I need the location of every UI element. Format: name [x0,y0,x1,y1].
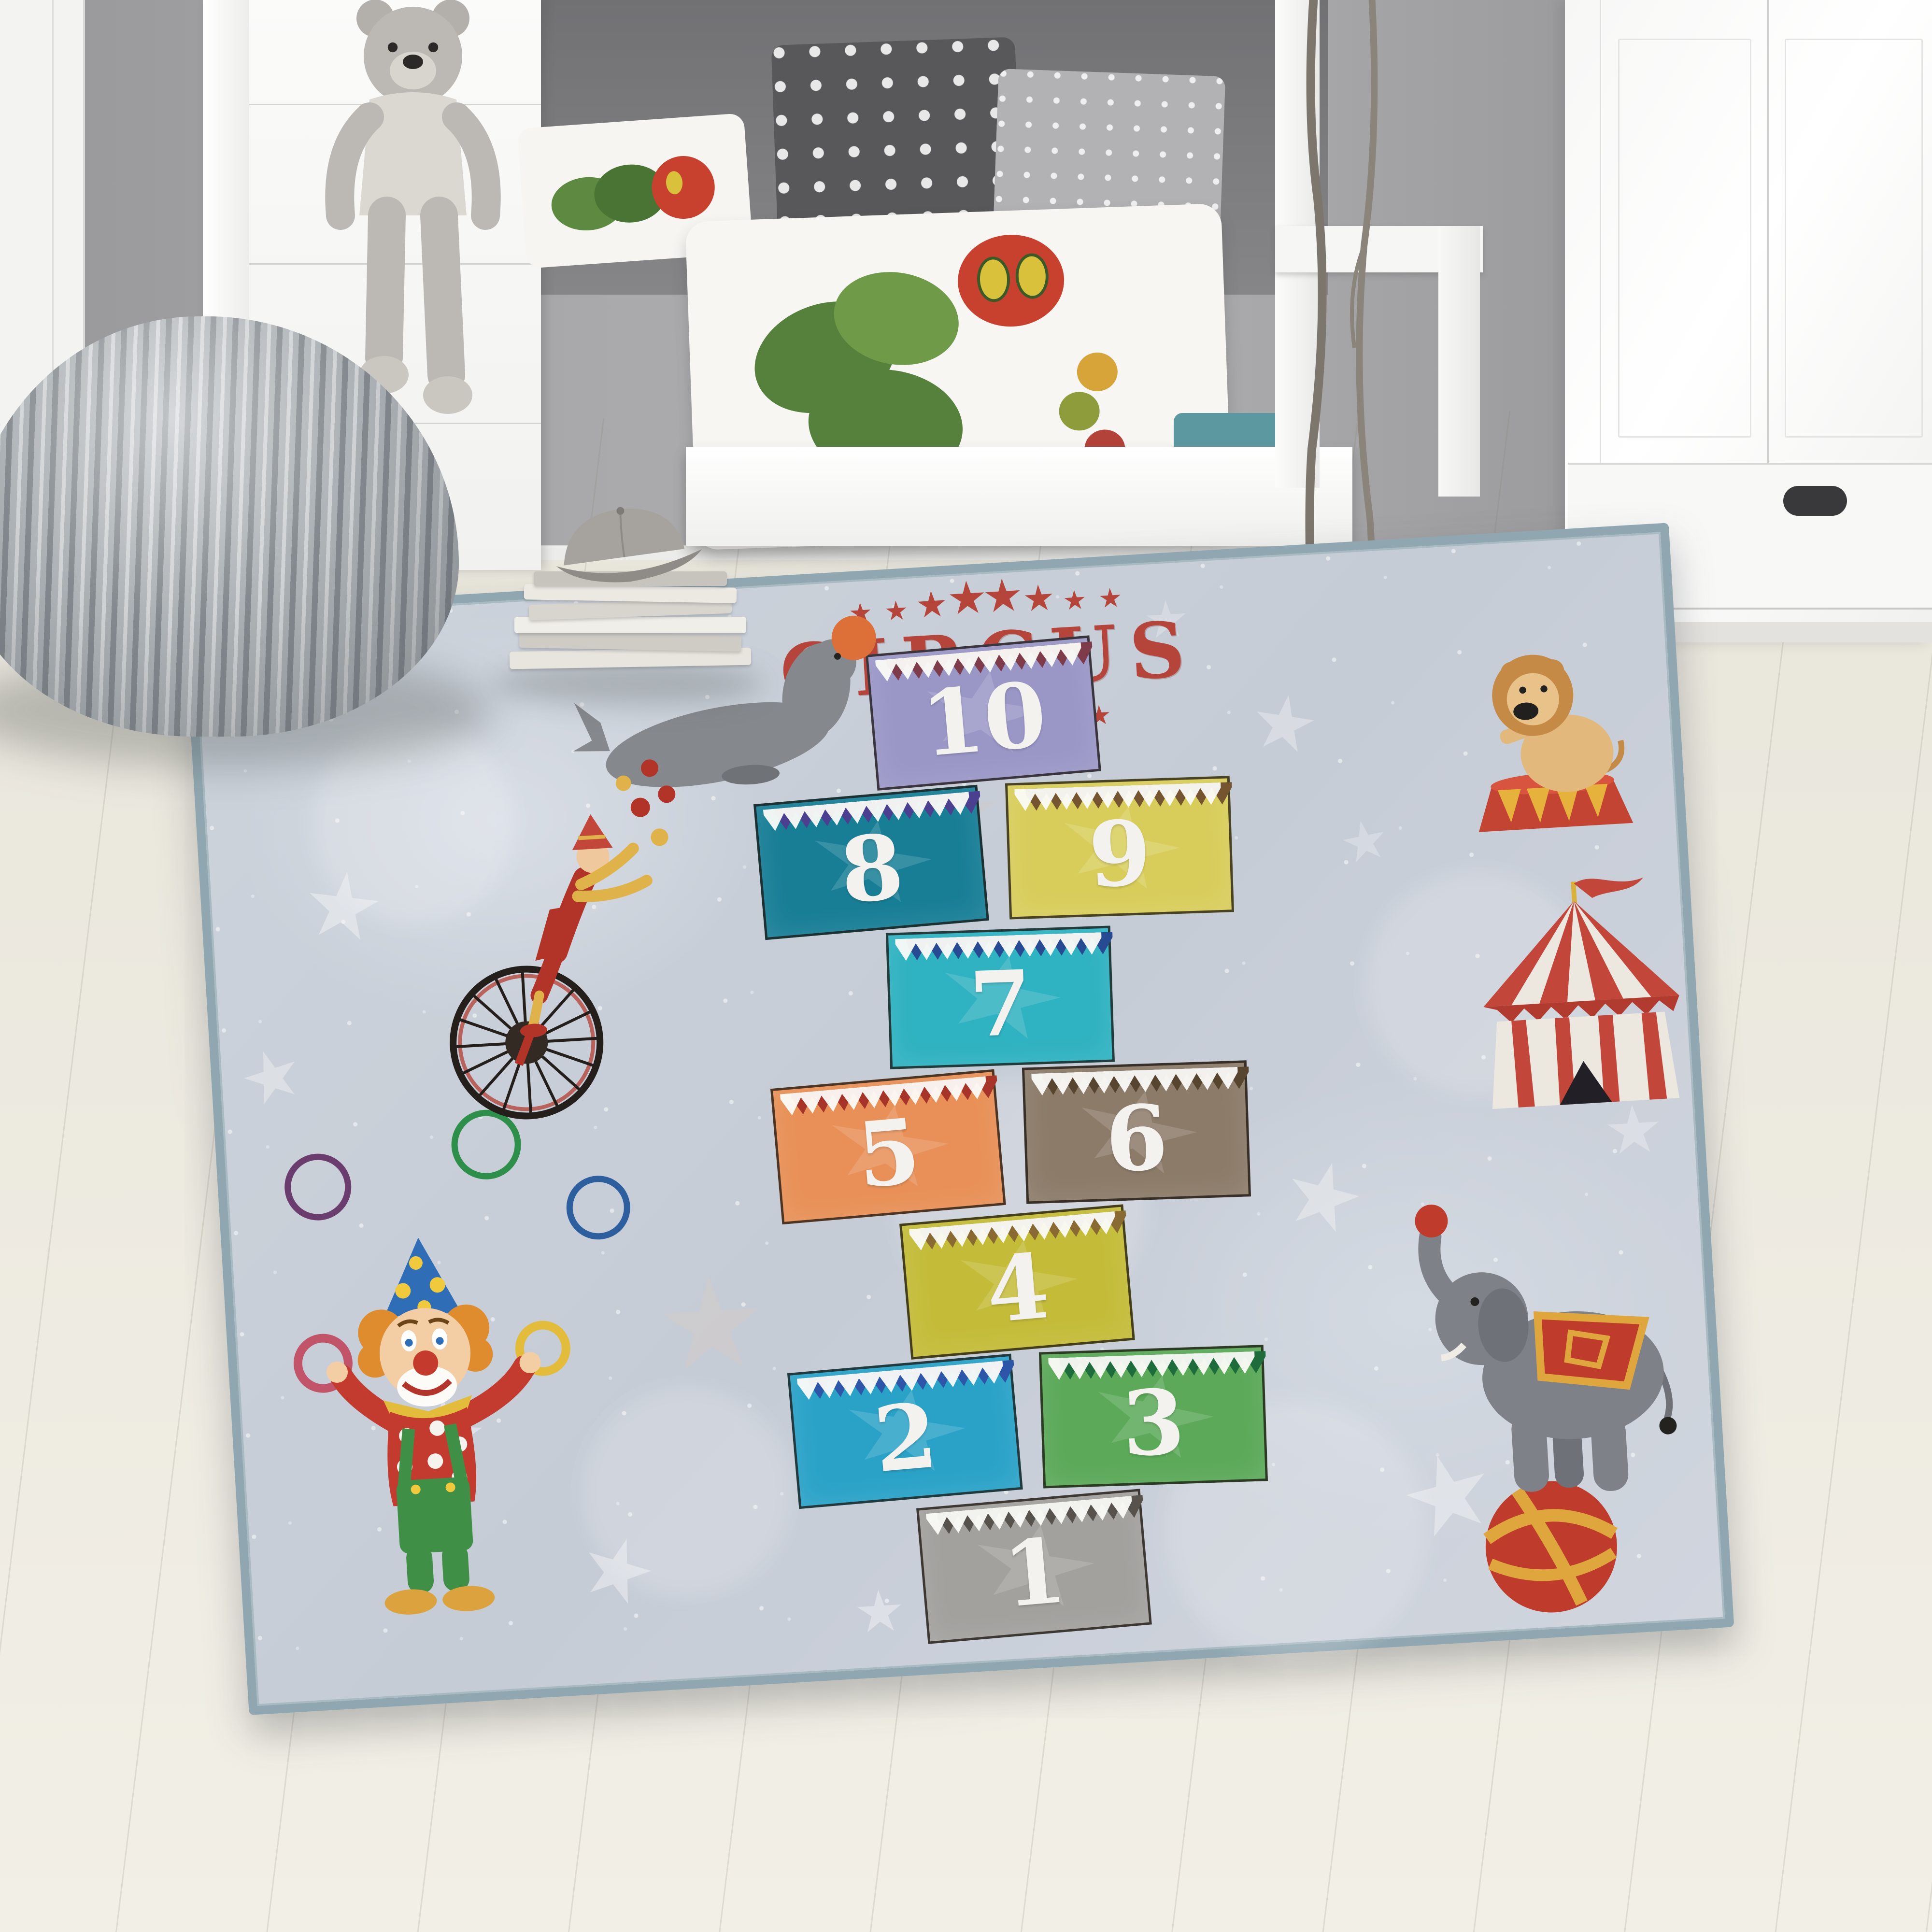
book-stack [500,490,761,693]
square-number: 8 [837,822,907,916]
lion-on-podium [1442,615,1658,854]
square-number: 2 [871,1391,940,1485]
drawer-handle [1783,486,1847,516]
hopscotch-square-1: 1 [916,1489,1152,1644]
caterpillar-head [956,233,1065,328]
hopscotch-square-4: 4 [899,1204,1135,1359]
bunting-garland [1014,782,1222,814]
circus-tent [1462,869,1698,1133]
unicycle-juggler [410,755,691,1128]
hopscotch-square-6: 6 [1022,1060,1251,1204]
star-icon [885,600,908,623]
square-number: 1 [1000,1525,1069,1620]
square-number: 5 [854,1106,923,1201]
hopscotch-square-9: 9 [1005,776,1234,919]
square-number: 7 [968,958,1033,1050]
bed-post-right [1438,226,1480,497]
bed-side-rail [686,447,1352,546]
star-icon [1064,589,1086,612]
square-number: 3 [1121,1377,1186,1468]
hopscotch-square-5: 5 [770,1069,1006,1224]
bunting-garland [1048,1351,1255,1383]
star-icon [1099,587,1122,610]
square-number: 6 [1104,1093,1169,1184]
hopscotch-square-10: 10 [866,635,1101,790]
square-number: 9 [1087,808,1152,899]
hopscotch-square-8: 8 [753,785,989,940]
juggling-clown [283,1222,575,1624]
kids-room-photo: CIRCUS 10 8 9 7 5 6 4 2 3 1 [0,0,1932,1932]
hopscotch-square-2: 2 [787,1354,1023,1509]
hopscotch-square-3: 3 [1039,1345,1268,1488]
elephant-on-ball [1384,1188,1727,1631]
hopscotch-square-7: 7 [886,925,1115,1069]
star-icon [1023,583,1054,614]
bunting-garland [1031,1067,1238,1099]
square-number: 4 [983,1241,1052,1335]
bunting-garland [895,932,1102,964]
square-number: 10 [918,669,1050,769]
star-icon [917,590,947,621]
